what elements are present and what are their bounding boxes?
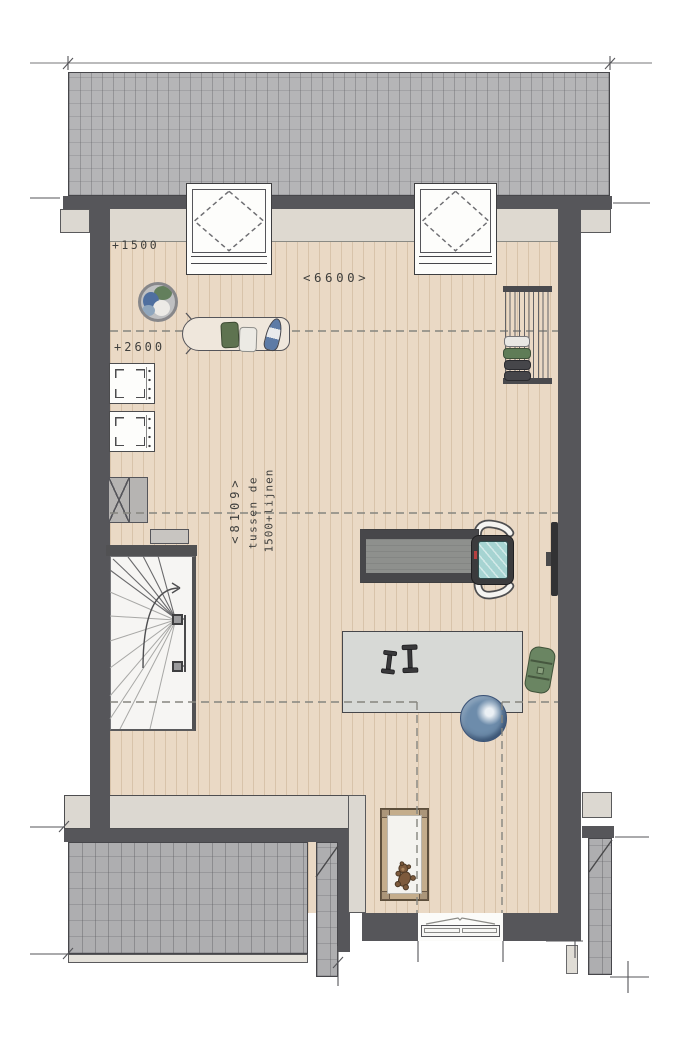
dumbbell-2 xyxy=(400,644,419,675)
clothes-lightblue xyxy=(142,305,155,316)
skylight-sill xyxy=(419,256,492,270)
hanging-clothes-white xyxy=(504,336,530,347)
washer-control-panel xyxy=(146,415,152,448)
laundry-basket xyxy=(138,282,178,322)
folded-clothes-green xyxy=(220,322,239,349)
folded-clothes-white xyxy=(239,327,258,353)
lower-roof-plane-left xyxy=(68,842,308,954)
lower-roof-gutter-left xyxy=(68,954,308,963)
washing-machine-2 xyxy=(109,411,155,452)
clothes-white xyxy=(153,300,170,316)
skylight-opening-diamond xyxy=(421,190,490,252)
treadmill-power-light xyxy=(474,551,477,559)
tv-screen xyxy=(551,522,558,596)
mat-strap-2 xyxy=(528,675,550,681)
skylight-frame xyxy=(420,189,491,253)
treadmill-frame xyxy=(360,529,479,583)
treadmill-rail-bottom xyxy=(366,573,478,582)
skylight-frame xyxy=(192,189,266,253)
lower-roof-eaves-right xyxy=(582,792,612,818)
mat-buckle xyxy=(536,667,544,675)
bottom-window-frame xyxy=(421,925,500,937)
roof-overhang-right xyxy=(580,209,611,233)
eaves-wall-band xyxy=(63,196,612,209)
skylight-right xyxy=(414,183,497,275)
bottom-wall-left-segment xyxy=(362,913,418,941)
treadmill-screen xyxy=(478,541,508,579)
window-pane-right xyxy=(462,928,497,933)
mat-strap-1 xyxy=(530,659,552,665)
ventilation-unit xyxy=(108,477,148,523)
right-wall xyxy=(558,209,581,913)
drying-rack xyxy=(503,286,552,384)
roof-plane-top xyxy=(68,72,610,196)
vent-unit-cross xyxy=(109,478,130,522)
washing-machine-1 xyxy=(109,363,155,404)
hanging-clothes-dark2 xyxy=(504,371,531,381)
gym-ball xyxy=(460,695,507,742)
dumbbell-1 xyxy=(380,649,399,676)
stair-railing-post-bottom xyxy=(172,661,183,672)
stair-top-wall xyxy=(106,545,197,556)
note-1500-lijnen: 1500+lijnen xyxy=(263,465,276,557)
skylight-opening-diamond xyxy=(193,190,265,252)
skylight-left xyxy=(186,183,272,275)
dimension-label-8109: <8109> xyxy=(228,470,242,550)
lower-wall-band-right xyxy=(582,826,614,838)
dimension-label-6600: <6600> xyxy=(303,270,369,285)
washer-control-panel xyxy=(146,367,152,400)
skylight-sill xyxy=(191,256,267,270)
level-label-2600: +2600 xyxy=(114,340,165,354)
hanging-clothes-dark1 xyxy=(504,360,531,370)
stair-railing-post-top xyxy=(172,614,183,625)
level-label-1500: +1500 xyxy=(112,238,159,252)
washer-drum xyxy=(115,417,145,446)
tv-mount xyxy=(546,552,551,566)
window-pane-left xyxy=(424,928,460,933)
stairwell xyxy=(110,556,196,731)
baby-cot xyxy=(380,808,429,901)
left-wall xyxy=(90,209,110,841)
storage-box xyxy=(150,529,189,544)
treadmill-rail-top xyxy=(366,530,478,539)
hanging-clothes-green xyxy=(503,348,531,359)
note-tussen-de: tussen de xyxy=(247,473,260,553)
lower-roof-strip-left xyxy=(316,842,338,977)
bottom-wall-right-segment xyxy=(503,913,581,941)
washer-drum xyxy=(115,369,145,398)
lower-roof-strip-right xyxy=(588,838,612,975)
roof-overhang-left xyxy=(60,209,90,233)
dormer-cheek-left xyxy=(348,795,366,913)
lower-eaves-box-right xyxy=(566,945,578,974)
floor-plan-canvas: +1500 <6600> +2600 <8109> tussen de 1500… xyxy=(0,0,682,1050)
